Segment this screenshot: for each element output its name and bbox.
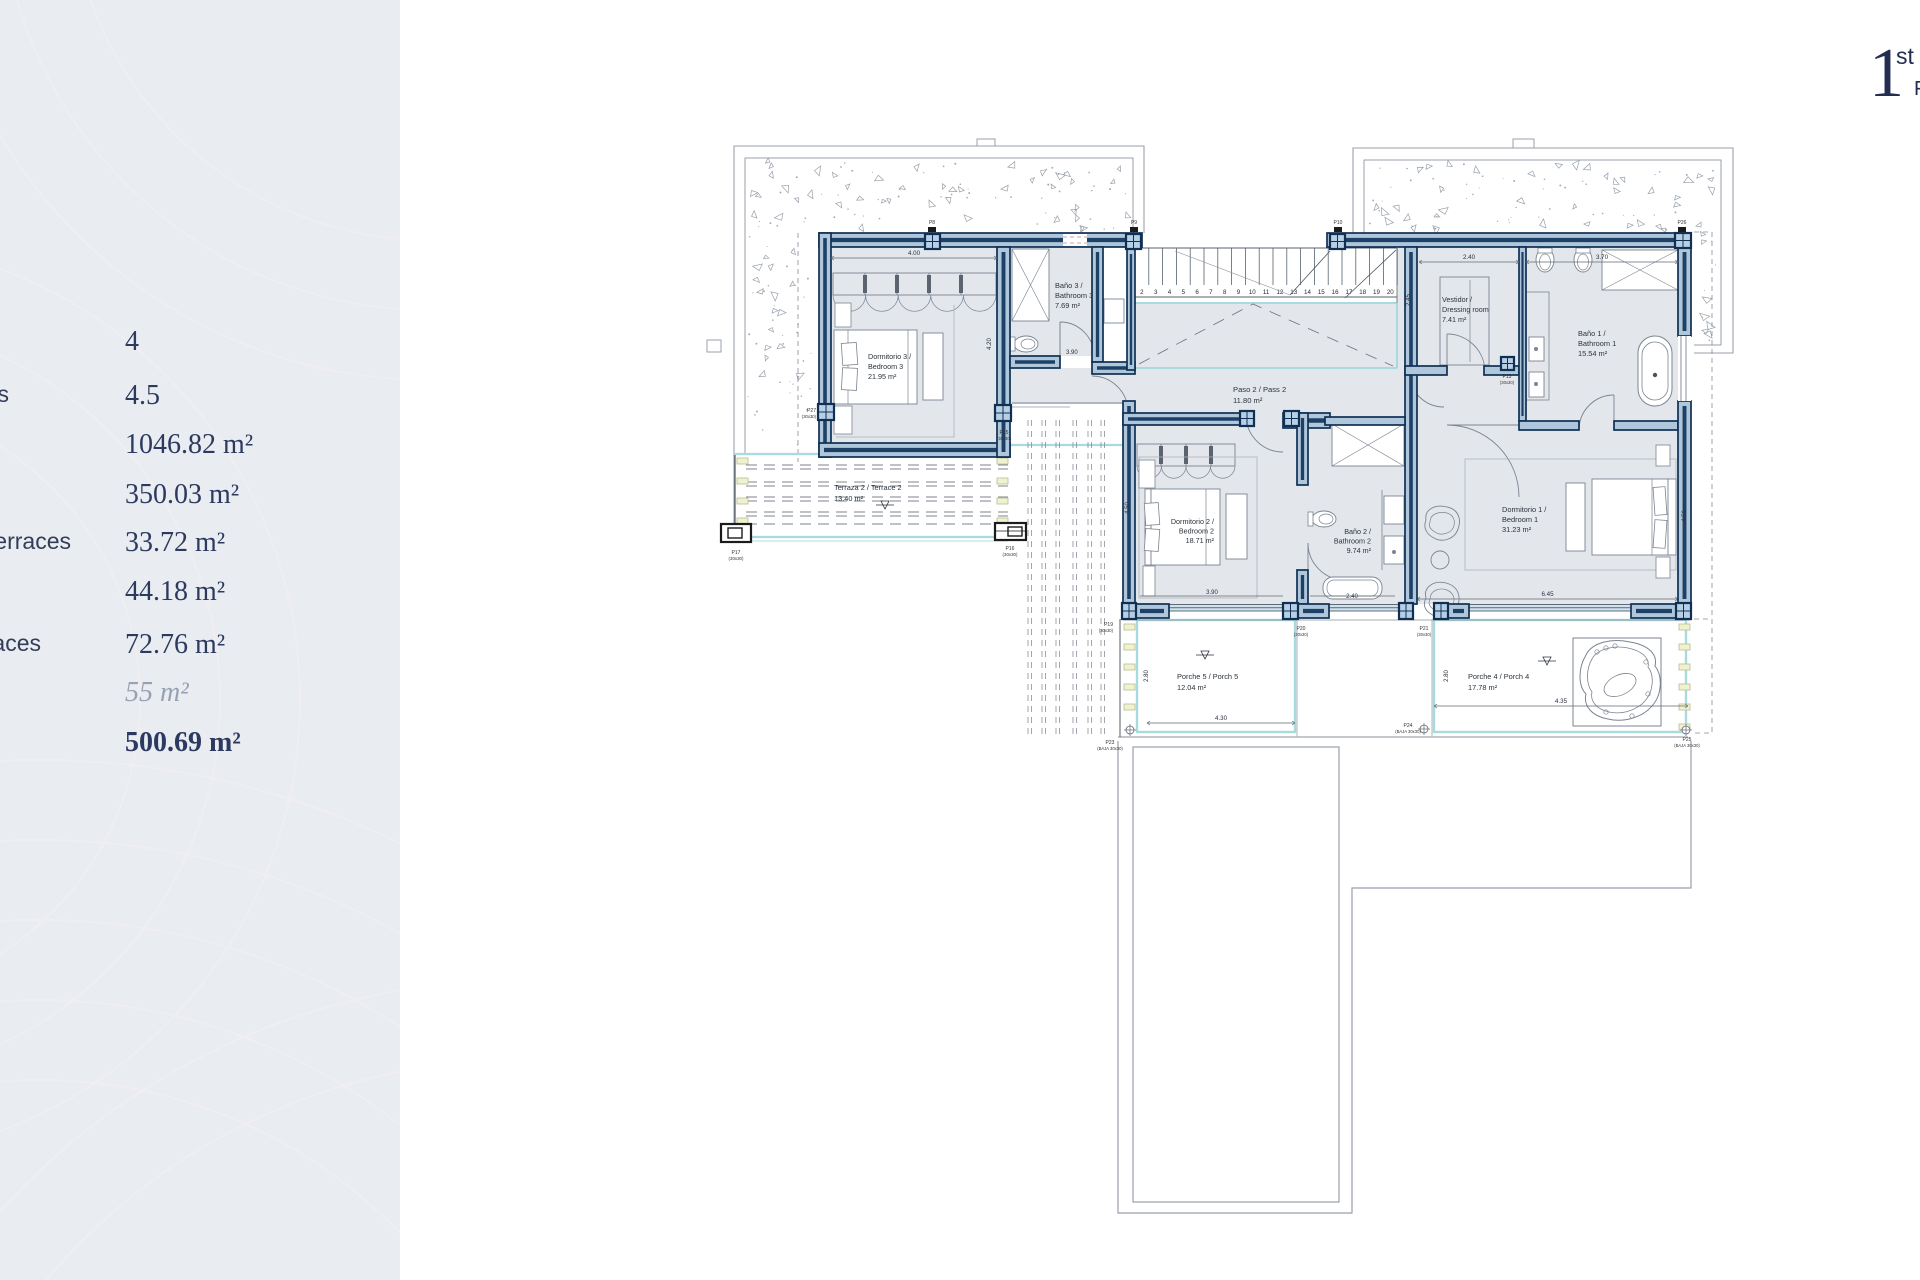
svg-text:terraces: terraces bbox=[0, 630, 41, 656]
svg-text:Covered terraces: Covered terraces bbox=[0, 528, 71, 554]
svg-text:(30x30): (30x30) bbox=[729, 556, 744, 561]
svg-text:(30x30): (30x30) bbox=[1417, 632, 1432, 637]
svg-text:2.80: 2.80 bbox=[1144, 670, 1150, 682]
svg-text:P8: P8 bbox=[929, 220, 935, 226]
svg-text:4.30: 4.30 bbox=[1215, 715, 1228, 722]
svg-text:7.41 m²: 7.41 m² bbox=[1442, 315, 1467, 324]
svg-text:72.76 m²: 72.76 m² bbox=[125, 629, 225, 660]
svg-text:Paso 2 / Pass 2: Paso 2 / Pass 2 bbox=[1233, 385, 1286, 394]
svg-text:Bathroom 1: Bathroom 1 bbox=[1578, 339, 1616, 348]
svg-text:7: 7 bbox=[1209, 289, 1213, 296]
svg-text:4: 4 bbox=[125, 326, 139, 357]
svg-text:4.20: 4.20 bbox=[987, 338, 993, 350]
svg-text:5: 5 bbox=[1182, 289, 1186, 296]
svg-text:55 m²: 55 m² bbox=[125, 677, 189, 708]
svg-text:Dormitorio 3 /: Dormitorio 3 / bbox=[868, 352, 911, 361]
svg-text:17: 17 bbox=[1345, 289, 1352, 296]
svg-text:P9: P9 bbox=[1131, 220, 1137, 226]
svg-text:(30x30): (30x30) bbox=[1500, 380, 1515, 385]
svg-text:4.5: 4.5 bbox=[125, 380, 160, 411]
svg-text:Bathroom 2: Bathroom 2 bbox=[1334, 537, 1371, 546]
svg-text:18: 18 bbox=[1359, 289, 1366, 296]
svg-text:4: 4 bbox=[1168, 289, 1172, 296]
svg-text:16: 16 bbox=[1332, 289, 1339, 296]
svg-text:2.40: 2.40 bbox=[1463, 254, 1476, 261]
svg-text:13.40 m²: 13.40 m² bbox=[834, 494, 864, 503]
svg-text:11: 11 bbox=[1263, 289, 1270, 296]
svg-text:(BAJA 30x30): (BAJA 30x30) bbox=[1674, 743, 1700, 748]
svg-text:9: 9 bbox=[1237, 289, 1241, 296]
svg-text:4.00: 4.00 bbox=[908, 250, 921, 257]
svg-text:(30x30): (30x30) bbox=[1099, 628, 1114, 633]
svg-text:(BAJA 30x30): (BAJA 30x30) bbox=[1097, 746, 1123, 751]
svg-text:18.71 m²: 18.71 m² bbox=[1186, 536, 1215, 545]
svg-text:P26: P26 bbox=[1678, 220, 1687, 226]
svg-text:Bedroom 1: Bedroom 1 bbox=[1502, 515, 1538, 524]
svg-text:st: st bbox=[1896, 43, 1915, 69]
svg-text:6.45: 6.45 bbox=[1541, 591, 1554, 598]
svg-text:44.18 m²: 44.18 m² bbox=[125, 576, 225, 607]
svg-text:Baño 3 /: Baño 3 / bbox=[1055, 281, 1083, 290]
svg-text:17.78 m²: 17.78 m² bbox=[1468, 683, 1498, 692]
svg-text:(BAJA 30x30): (BAJA 30x30) bbox=[1395, 729, 1421, 734]
svg-text:Terraza 2 / Terrace 2: Terraza 2 / Terrace 2 bbox=[834, 483, 902, 492]
svg-text:6: 6 bbox=[1195, 289, 1199, 296]
svg-text:7.69 m²: 7.69 m² bbox=[1055, 301, 1081, 310]
svg-text:Bathroom 3: Bathroom 3 bbox=[1055, 291, 1093, 300]
svg-text:Dressing room: Dressing room bbox=[1442, 305, 1489, 314]
svg-text:15.54 m²: 15.54 m² bbox=[1578, 349, 1608, 358]
svg-text:15: 15 bbox=[1318, 289, 1325, 296]
svg-text:Vestidor /: Vestidor / bbox=[1442, 295, 1472, 304]
svg-text:Baño 1 /: Baño 1 / bbox=[1578, 329, 1606, 338]
svg-text:(30x30): (30x30) bbox=[1003, 552, 1018, 557]
svg-text:3.90: 3.90 bbox=[1206, 590, 1218, 596]
svg-text:Porche 4 / Porch 4: Porche 4 / Porch 4 bbox=[1468, 672, 1529, 681]
svg-text:(30x30): (30x30) bbox=[802, 414, 817, 419]
svg-text:350.03 m²: 350.03 m² bbox=[125, 479, 239, 510]
svg-text:19: 19 bbox=[1373, 289, 1380, 296]
svg-text:(30x30): (30x30) bbox=[997, 436, 1012, 441]
svg-text:Dormitorio 2 /: Dormitorio 2 / bbox=[1171, 517, 1214, 526]
svg-text:8: 8 bbox=[1223, 289, 1227, 296]
svg-text:3.90: 3.90 bbox=[1066, 350, 1078, 356]
svg-text:2.45: 2.45 bbox=[1406, 294, 1412, 306]
svg-text:1046.82 m²: 1046.82 m² bbox=[125, 429, 253, 460]
svg-text:3: 3 bbox=[1154, 289, 1158, 296]
svg-text:10: 10 bbox=[1249, 289, 1256, 296]
svg-text:Bedroom 2: Bedroom 2 bbox=[1179, 527, 1214, 536]
svg-text:11.80 m²: 11.80 m² bbox=[1233, 396, 1263, 405]
svg-text:2: 2 bbox=[1140, 289, 1144, 296]
svg-text:Bedroom 3: Bedroom 3 bbox=[868, 362, 903, 371]
svg-text:(30x30): (30x30) bbox=[1294, 632, 1309, 637]
svg-text:500.69 m²: 500.69 m² bbox=[125, 727, 241, 758]
svg-text:Porche 5 / Porch 5: Porche 5 / Porch 5 bbox=[1177, 672, 1238, 681]
svg-text:Baño 2 /: Baño 2 / bbox=[1344, 527, 1371, 536]
svg-text:9.74 m²: 9.74 m² bbox=[1347, 546, 1372, 555]
svg-text:P10: P10 bbox=[1334, 220, 1343, 226]
svg-text:4.50: 4.50 bbox=[1682, 510, 1688, 522]
svg-text:3.70: 3.70 bbox=[1596, 254, 1609, 261]
svg-text:31.23 m²: 31.23 m² bbox=[1502, 525, 1532, 534]
svg-text:2.40: 2.40 bbox=[1346, 594, 1358, 600]
svg-text:FLOOR: FLOOR bbox=[1914, 78, 1920, 100]
svg-text:2.80: 2.80 bbox=[1444, 670, 1450, 682]
svg-text:14: 14 bbox=[1304, 289, 1311, 296]
svg-text:Dormitorio 1 /: Dormitorio 1 / bbox=[1502, 505, 1547, 514]
svg-text:12.04 m²: 12.04 m² bbox=[1177, 683, 1207, 692]
svg-text:33.72 m²: 33.72 m² bbox=[125, 527, 225, 558]
svg-text:21.95 m²: 21.95 m² bbox=[868, 372, 897, 381]
svg-text:4.35: 4.35 bbox=[1555, 698, 1568, 705]
svg-text:20: 20 bbox=[1387, 289, 1394, 296]
svg-text:Bathrooms: Bathrooms bbox=[0, 381, 9, 407]
svg-text:4.50: 4.50 bbox=[1125, 502, 1131, 514]
